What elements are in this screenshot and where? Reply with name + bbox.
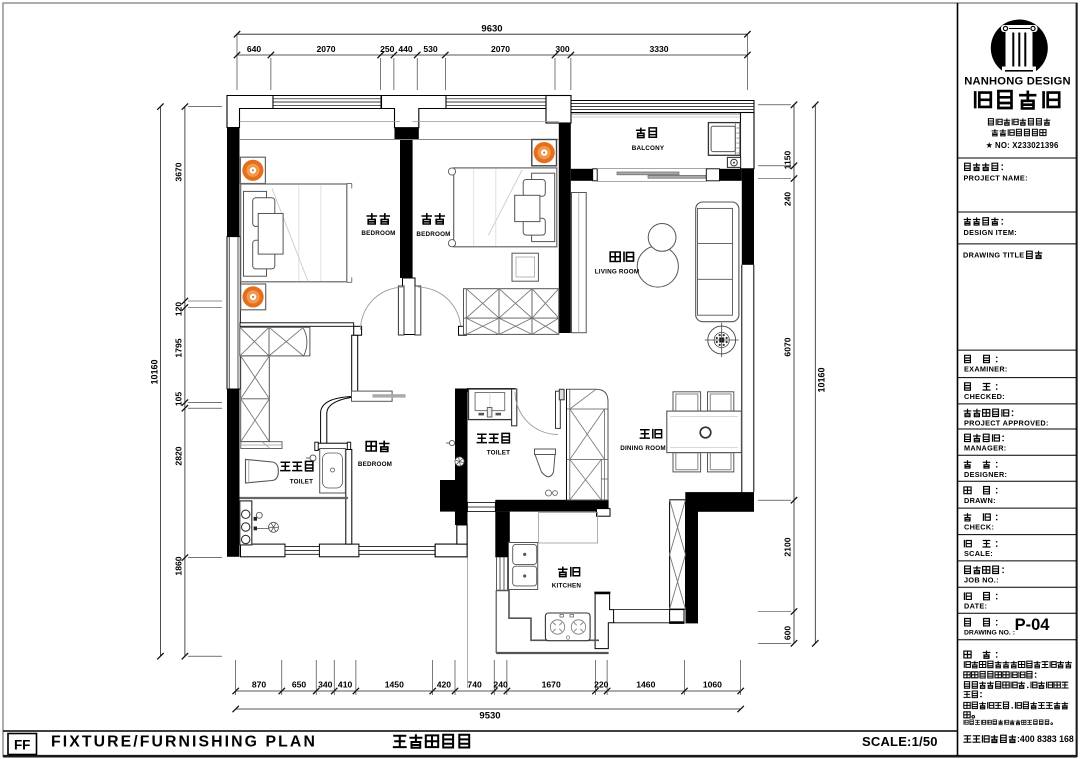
- svg-text:10160: 10160: [817, 367, 827, 392]
- svg-text:FIXTURE/FURNISHING PLAN: FIXTURE/FURNISHING PLAN: [51, 734, 317, 751]
- svg-text:3670: 3670: [174, 162, 184, 181]
- svg-text:PROJECT APPROVED:: PROJECT APPROVED:: [964, 418, 1049, 427]
- svg-text:740: 740: [467, 680, 482, 690]
- svg-text:9530: 9530: [479, 711, 500, 722]
- svg-text:BEDROOM: BEDROOM: [361, 230, 395, 237]
- svg-text:BEDROOM: BEDROOM: [416, 231, 450, 238]
- svg-text:1795: 1795: [174, 338, 184, 357]
- svg-text:530: 530: [423, 44, 438, 54]
- svg-text:SCALE:1/50: SCALE:1/50: [862, 734, 938, 749]
- svg-text:240: 240: [493, 680, 508, 690]
- svg-text:9630: 9630: [481, 24, 502, 35]
- svg-text:DRAWING TITLE: DRAWING TITLE: [963, 251, 1024, 260]
- svg-text:220: 220: [594, 680, 609, 690]
- svg-text:420: 420: [437, 680, 452, 690]
- svg-text:JOB NO.:: JOB NO.:: [964, 575, 999, 584]
- svg-text:10160: 10160: [150, 359, 160, 384]
- svg-text:BALCONY: BALCONY: [632, 145, 665, 152]
- svg-text:BEDROOM: BEDROOM: [358, 461, 392, 468]
- svg-text:PROJECT NAME:: PROJECT NAME:: [964, 174, 1028, 183]
- svg-text:CHECK:: CHECK:: [964, 523, 994, 532]
- svg-text:TOILET: TOILET: [487, 450, 510, 457]
- svg-text:2070: 2070: [316, 44, 335, 54]
- svg-text:240: 240: [783, 192, 793, 207]
- svg-text:410: 410: [338, 680, 353, 690]
- svg-text:2070: 2070: [491, 44, 510, 54]
- svg-text::400 8383 168: :400 8383 168: [1017, 734, 1074, 744]
- svg-text:1460: 1460: [636, 680, 655, 690]
- svg-text:120: 120: [174, 302, 184, 317]
- svg-text:300: 300: [555, 44, 570, 54]
- svg-text:CHECKED:: CHECKED:: [964, 392, 1005, 401]
- svg-text:DRAWING NO. :: DRAWING NO. :: [964, 630, 1015, 637]
- svg-text:440: 440: [398, 44, 413, 54]
- svg-text:LIVING ROOM: LIVING ROOM: [595, 269, 640, 276]
- svg-text:SCALE:: SCALE:: [964, 549, 993, 558]
- svg-text:DATE:: DATE:: [964, 602, 987, 611]
- svg-text:DESIGN ITEM:: DESIGN ITEM:: [964, 228, 1017, 237]
- svg-text:TOILET: TOILET: [290, 479, 313, 486]
- svg-text:FF: FF: [14, 738, 31, 753]
- svg-text:NO: X233021396: NO: X233021396: [995, 141, 1059, 150]
- svg-text:1670: 1670: [542, 680, 561, 690]
- svg-text:DINING ROOM: DINING ROOM: [620, 445, 666, 452]
- svg-text:KITCHEN: KITCHEN: [552, 583, 582, 590]
- svg-text:P-04: P-04: [1015, 616, 1051, 634]
- svg-text:650: 650: [292, 680, 307, 690]
- svg-text:NANHONG DESIGN: NANHONG DESIGN: [964, 76, 1071, 88]
- svg-text:6070: 6070: [783, 337, 793, 356]
- svg-text:EXAMINER:: EXAMINER:: [964, 365, 1008, 374]
- svg-text:105: 105: [174, 392, 184, 407]
- svg-text:600: 600: [783, 626, 793, 641]
- svg-text:1860: 1860: [174, 556, 184, 575]
- svg-text:2820: 2820: [174, 446, 184, 465]
- svg-text:DRAWN:: DRAWN:: [964, 496, 996, 505]
- svg-text:640: 640: [247, 44, 262, 54]
- svg-text:3330: 3330: [649, 44, 668, 54]
- svg-text:1150: 1150: [783, 150, 793, 169]
- svg-text:1450: 1450: [385, 680, 404, 690]
- svg-text:250: 250: [380, 44, 395, 54]
- svg-text:340: 340: [318, 680, 333, 690]
- svg-text:870: 870: [252, 680, 267, 690]
- svg-text:2100: 2100: [783, 537, 793, 556]
- svg-text:MANAGER:: MANAGER:: [964, 444, 1007, 453]
- svg-text:1060: 1060: [703, 680, 722, 690]
- svg-text:DESIGNER:: DESIGNER:: [964, 470, 1007, 479]
